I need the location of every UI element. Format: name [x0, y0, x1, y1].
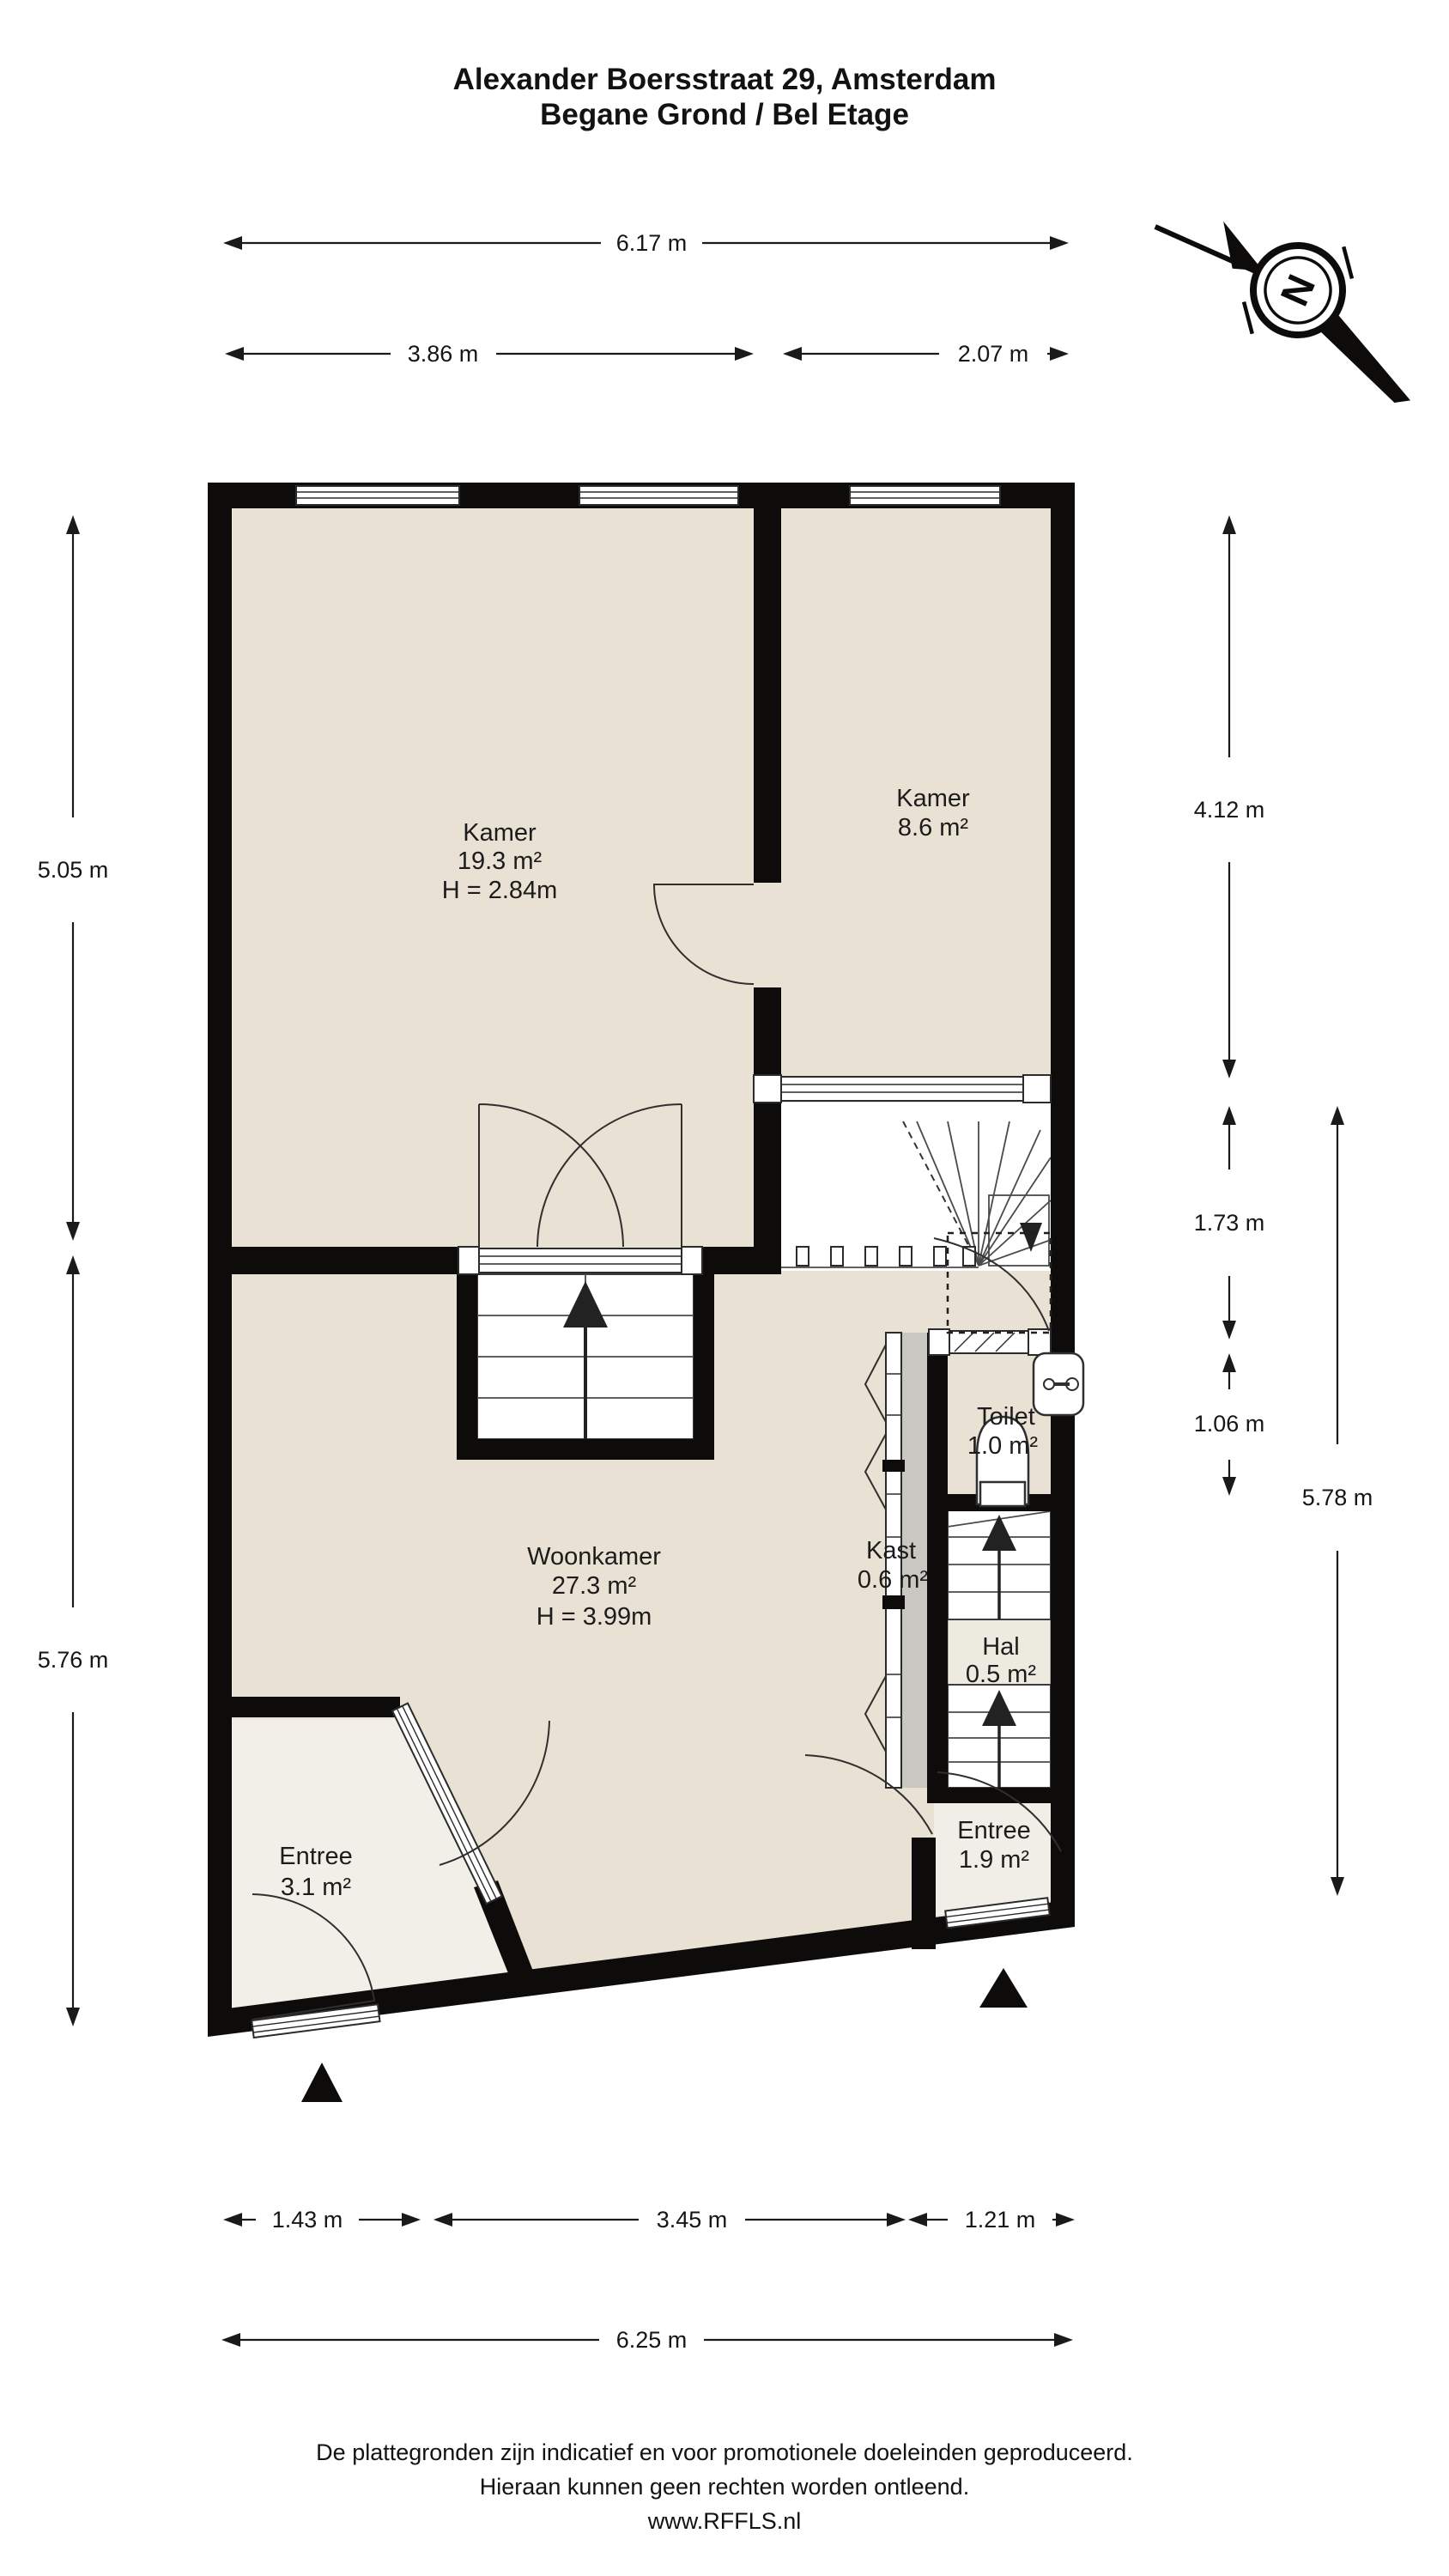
svg-text:1.73 m: 1.73 m	[1194, 1210, 1265, 1236]
entree2-area: 1.9 m²	[959, 1846, 1030, 1874]
stairwell-wall-right	[694, 1274, 714, 1439]
footer-disclaimer: De plattegronden zijn indicatief en voor…	[0, 2435, 1449, 2538]
svg-text:5.78 m: 5.78 m	[1302, 1485, 1373, 1510]
hal-area: 0.5 m²	[966, 1661, 1037, 1688]
dim-left-upper: 5.05 m	[38, 515, 109, 1241]
dim-right-total: 5.78 m	[1302, 1106, 1373, 1896]
dim-bottom-right: 1.21 m	[908, 2207, 1075, 2233]
winder-area	[781, 1103, 1051, 1271]
wall-entree2-left	[912, 1838, 936, 1949]
dim-right-small: 1.06 m	[1194, 1353, 1265, 1496]
kast-area: 0.6 m²	[858, 1566, 929, 1594]
svg-text:1.21 m: 1.21 m	[965, 2207, 1036, 2233]
dim-bottom-total: 6.25 m	[221, 2327, 1073, 2353]
winder-staircase	[779, 1103, 1051, 1271]
wall-kamer-divider	[754, 508, 781, 883]
kamer1-area: 19.3 m²	[458, 848, 543, 875]
floorplan-svg: Kamer 19.3 m² H = 2.84m Kamer 8.6 m² Woo…	[0, 0, 1449, 2576]
lower-flight-staircase	[948, 1685, 1051, 1788]
stairwell-wall-bottom	[457, 1439, 714, 1460]
entree1-area: 3.1 m²	[281, 1874, 352, 1901]
entrance-arrow-left	[301, 2063, 343, 2102]
wall-middle-right	[702, 1247, 781, 1274]
svg-text:5.05 m: 5.05 m	[38, 857, 109, 883]
compass-icon: N	[1130, 173, 1449, 409]
svg-text:6.25 m: 6.25 m	[616, 2327, 688, 2353]
wall-entree2-top	[927, 1788, 1051, 1803]
dim-top-total: 6.17 m	[223, 230, 1069, 256]
kamer1-name: Kamer	[463, 819, 537, 847]
toilet-cistern	[980, 1482, 1025, 1506]
wall-column-left	[927, 1333, 948, 1788]
woonkamer-name: Woonkamer	[527, 1543, 661, 1571]
svg-text:4.12 m: 4.12 m	[1194, 797, 1265, 823]
entree1-name: Entree	[279, 1843, 352, 1870]
dim-right-mid: 1.73 m	[1194, 1106, 1265, 1340]
dim-right-upper: 4.12 m	[1194, 515, 1265, 1078]
footer-line-2: Hieraan kunnen geen rechten worden ontle…	[0, 2470, 1449, 2504]
svg-text:3.86 m: 3.86 m	[408, 341, 479, 367]
svg-text:1.43 m: 1.43 m	[272, 2207, 343, 2233]
svg-text:5.76 m: 5.76 m	[38, 1647, 109, 1673]
window-top-3	[850, 486, 1000, 505]
window-stairwell	[754, 1075, 1051, 1103]
hal-name: Hal	[982, 1633, 1020, 1661]
dim-bottom-mid: 3.45 m	[433, 2207, 906, 2233]
wall-middle-left	[232, 1247, 458, 1274]
entree2-name: Entree	[957, 1817, 1030, 1844]
footer-website: www.RFFLS.nl	[0, 2504, 1449, 2538]
footer-line-1: De plattegronden zijn indicatief en voor…	[0, 2435, 1449, 2470]
dim-top-left: 3.86 m	[225, 341, 754, 367]
svg-text:1.06 m: 1.06 m	[1194, 1411, 1265, 1437]
toilet-area: 1.0 m²	[967, 1432, 1039, 1460]
dim-top-right: 2.07 m	[783, 341, 1069, 367]
wall-left	[208, 483, 232, 2033]
woonkamer-area: 27.3 m²	[552, 1572, 637, 1600]
upper-flight-staircase	[948, 1510, 1051, 1619]
dim-bottom-left: 1.43 m	[223, 2207, 421, 2233]
floorplan-page: Alexander Boersstraat 29, Amsterdam Bega…	[0, 0, 1449, 2576]
kamer1-height: H = 2.84m	[442, 877, 558, 904]
woonkamer-height: H = 3.99m	[537, 1603, 652, 1631]
kamer2-name: Kamer	[896, 785, 970, 812]
kamer2-area: 8.6 m²	[898, 814, 969, 841]
stairwell-wall-left	[457, 1274, 477, 1439]
window-double-door-sill	[458, 1247, 702, 1274]
entrance-arrow-right	[979, 1968, 1028, 2008]
wall-right	[1051, 483, 1075, 1927]
wall-entree1-top	[232, 1697, 400, 1717]
svg-text:2.07 m: 2.07 m	[958, 341, 1029, 367]
dim-left-lower: 5.76 m	[38, 1255, 109, 2026]
toilet-name: Toilet	[977, 1403, 1035, 1431]
svg-text:3.45 m: 3.45 m	[657, 2207, 728, 2233]
kast-name: Kast	[866, 1537, 916, 1564]
center-staircase	[477, 1274, 694, 1439]
svg-text:6.17 m: 6.17 m	[616, 230, 688, 256]
window-top-1	[296, 486, 459, 505]
window-top-2	[579, 486, 738, 505]
